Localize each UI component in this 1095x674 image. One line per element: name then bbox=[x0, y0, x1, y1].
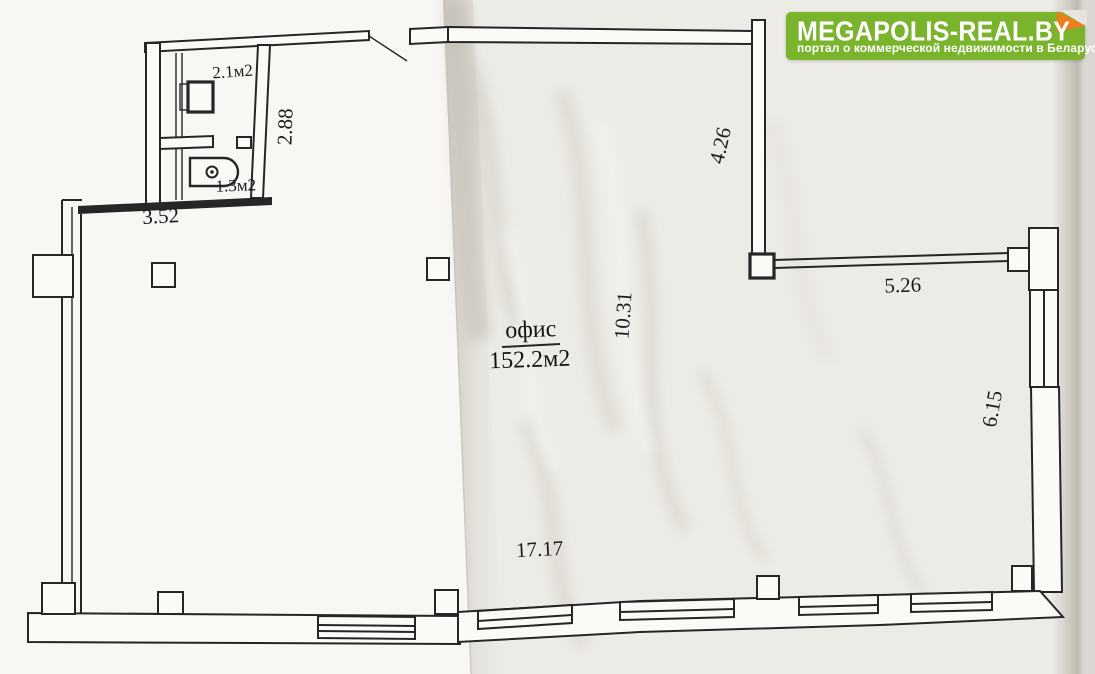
left-sheet bbox=[0, 0, 471, 674]
column-stub bbox=[757, 576, 779, 599]
top-wall-right bbox=[410, 27, 752, 44]
dimension-label-top-left: 3.52 bbox=[142, 203, 180, 229]
column-stub bbox=[1012, 566, 1032, 591]
dimension-label-wc-height: 2.88 bbox=[272, 108, 297, 146]
dimension-label-hall-depth: 10.31 bbox=[609, 291, 636, 340]
column-freestanding bbox=[152, 263, 175, 287]
floor-plan-drawing: 2.1м2 1.3м2 3.52 2.88 4.26 5.26 10.31 6.… bbox=[0, 0, 1095, 674]
upper-right-wall bbox=[752, 20, 765, 254]
dimension-label-right-top: 5.26 bbox=[884, 272, 922, 297]
column-corner bbox=[750, 254, 774, 278]
window-bottom-2 bbox=[620, 599, 734, 620]
column-at-seam bbox=[427, 258, 449, 280]
unit-area-label: 152.2м2 bbox=[489, 346, 571, 375]
column-stub bbox=[42, 583, 75, 614]
window-bottom-3 bbox=[799, 595, 878, 615]
column-stub bbox=[435, 590, 458, 614]
logo-banner: MEGAPOLIS-REAL.BY портал о коммерческой … bbox=[786, 12, 1085, 60]
dimension-label-bottom-width: 17.17 bbox=[515, 536, 563, 562]
unit-type-label: офис bbox=[505, 316, 557, 344]
column-stub bbox=[158, 592, 183, 614]
window-bottom-4 bbox=[911, 592, 992, 612]
window-right-wall bbox=[1030, 290, 1058, 387]
logo-subtitle: портал о коммерческой недвижимости в Бел… bbox=[797, 41, 1081, 55]
room-area-label-wc: 1.3м2 bbox=[215, 175, 256, 195]
room-area-label-utility: 2.1м2 bbox=[212, 61, 254, 83]
scanner-margin bbox=[1084, 0, 1095, 674]
window-left bbox=[318, 616, 415, 639]
scanned-floorplan-page: 2.1м2 1.3м2 3.52 2.88 4.26 5.26 10.31 6.… bbox=[0, 0, 1095, 674]
column-stub bbox=[1008, 248, 1029, 271]
wall-pilaster bbox=[33, 255, 73, 297]
